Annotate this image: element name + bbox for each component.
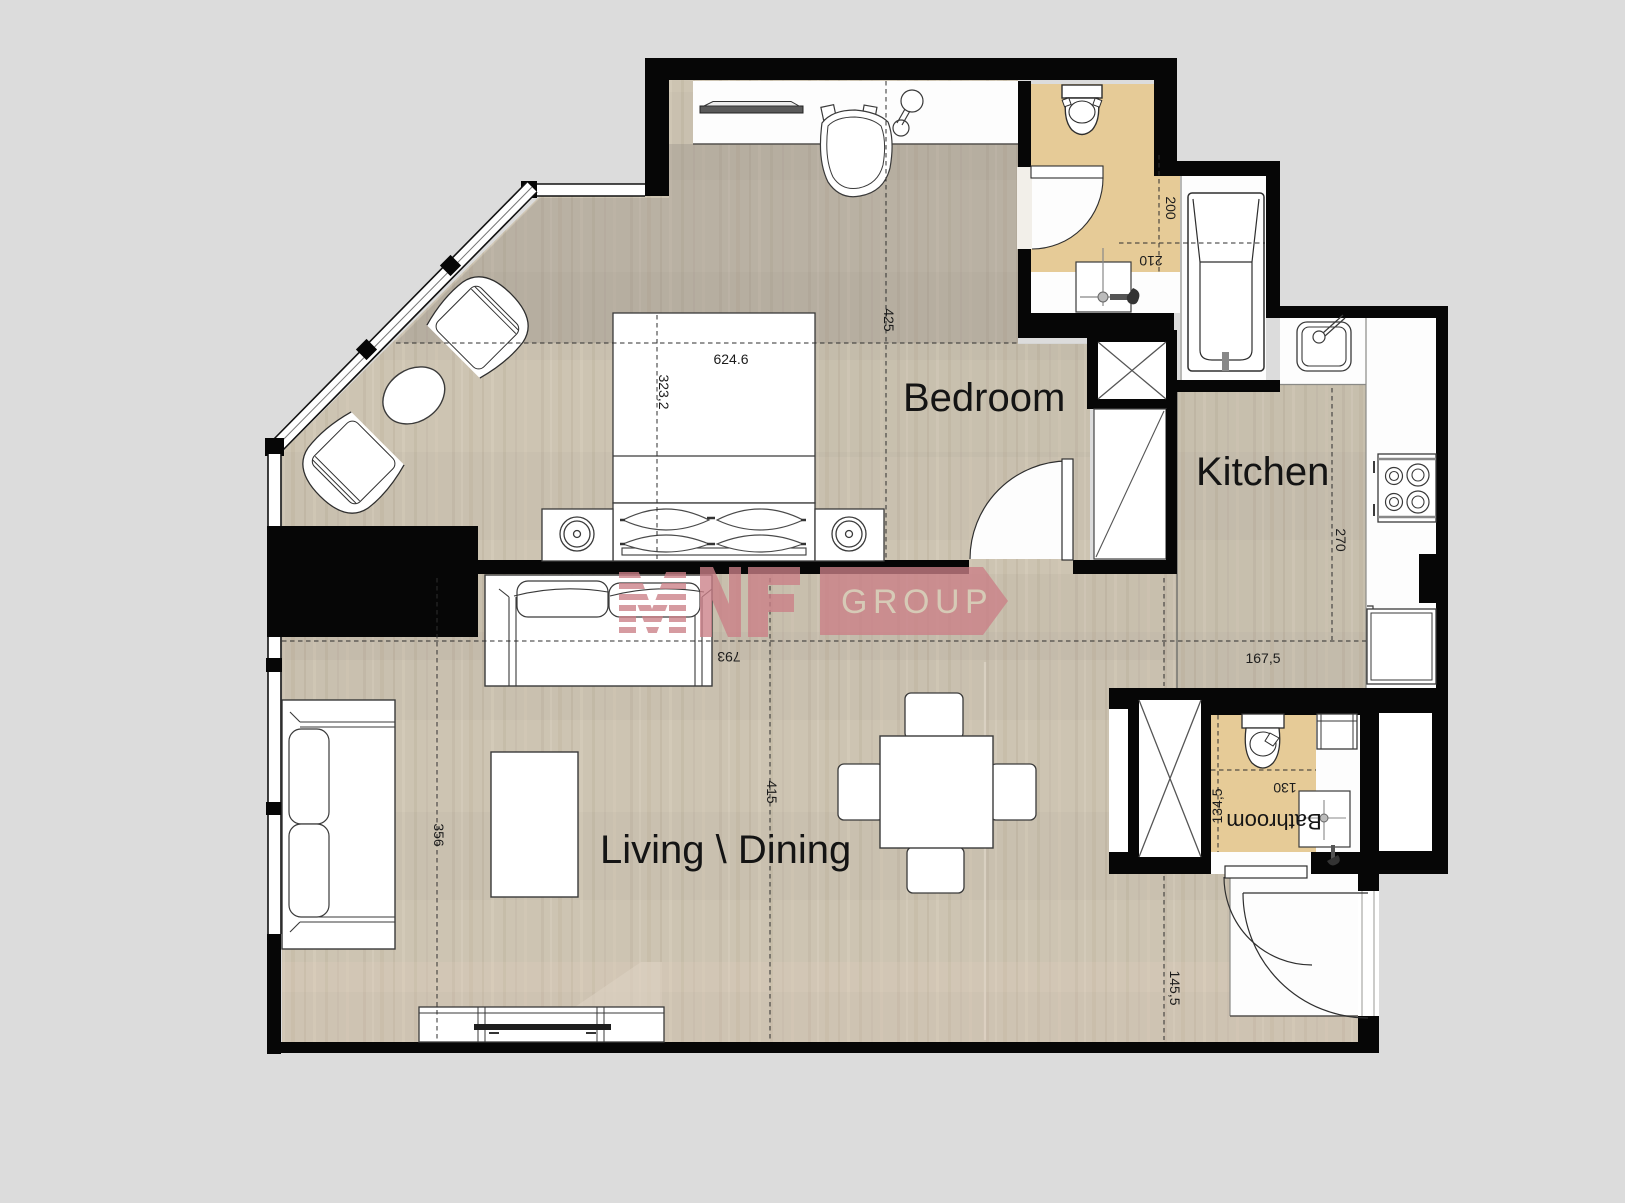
svg-text:323,2: 323,2 (656, 374, 672, 409)
svg-text:425: 425 (881, 308, 897, 332)
svg-text:624.6: 624.6 (713, 351, 748, 367)
svg-text:415: 415 (764, 780, 780, 804)
svg-text:167,5: 167,5 (1245, 650, 1280, 666)
svg-text:270: 270 (1333, 528, 1349, 552)
svg-text:Bedroom: Bedroom (903, 376, 1065, 420)
svg-text:Living \ Dining: Living \ Dining (600, 828, 851, 872)
svg-text:134,5: 134,5 (1209, 788, 1225, 823)
svg-text:793: 793 (717, 649, 741, 665)
svg-text:Bathroom: Bathroom (1226, 809, 1321, 834)
svg-text:Kitchen: Kitchen (1196, 450, 1329, 494)
svg-text:200: 200 (1163, 196, 1179, 220)
svg-text:210: 210 (1139, 253, 1163, 269)
svg-text:356: 356 (431, 823, 447, 847)
svg-text:GROUP: GROUP (841, 583, 993, 621)
svg-text:130: 130 (1273, 780, 1297, 796)
svg-text:145,5: 145,5 (1167, 970, 1183, 1005)
